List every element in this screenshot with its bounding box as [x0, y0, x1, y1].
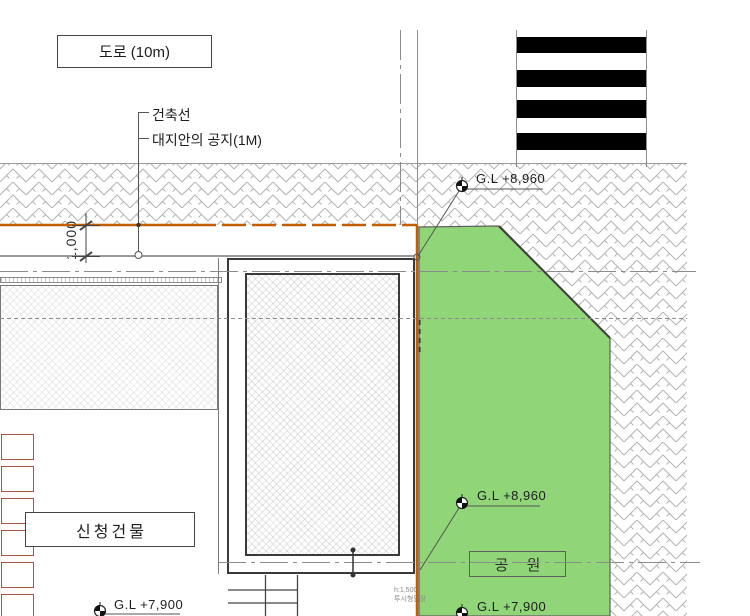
- crosswalk-stripe: [516, 37, 646, 53]
- gl-mid-leader: [420, 508, 459, 570]
- setback-label: 대지안의 공지(1M): [152, 130, 262, 150]
- fence-note: h:1,500 투시형담장: [394, 587, 426, 604]
- gl-level-bottom-right: G.L +7,900: [477, 599, 546, 614]
- building-line-label: 건축선: [152, 105, 191, 125]
- stairs: [228, 575, 298, 616]
- pavement-hatch-right: [420, 163, 687, 616]
- gl-top-leader: [418, 191, 459, 256]
- road-label-box: 도로 (10m): [57, 35, 212, 68]
- building-core-hatch: [245, 273, 400, 556]
- crosswalk-stripe: [516, 133, 646, 150]
- park-diagonal-edge: [499, 226, 610, 338]
- gl-level-mid: G.L +8,960: [477, 488, 546, 503]
- planter: [1, 434, 34, 460]
- park-label-box: 공 원: [469, 551, 566, 577]
- fence-type-label: 투시형담장: [394, 596, 426, 605]
- site-plan-drawing: 도로 (10m) 신청건물 공 원 건축선 대지안의 공지(1M) 1,000 …: [0, 0, 750, 616]
- leader-node-dot: [136, 223, 140, 227]
- park-label: 공 원: [488, 554, 548, 575]
- fence-height-label: h:1,500: [394, 587, 426, 596]
- survey-marker-icon: [457, 494, 468, 509]
- gl-level-bottom-left: G.L +7,900: [114, 597, 183, 612]
- applicant-building-label-box: 신청건물: [25, 512, 195, 547]
- planter: [1, 594, 34, 616]
- crosswalk-stripe: [516, 70, 646, 87]
- survey-marker-icon: [95, 602, 106, 616]
- planter: [1, 466, 34, 492]
- planter: [1, 562, 34, 588]
- left-building-deck: [0, 285, 218, 410]
- leader-node-circle: [135, 252, 142, 259]
- applicant-building-label: 신청건물: [73, 518, 147, 542]
- annotation-leader: [139, 112, 150, 251]
- crosswalk: [516, 30, 646, 170]
- dimension-1000-label: 1,000: [63, 212, 77, 268]
- survey-marker-icon: [457, 177, 468, 192]
- survey-marker-icon: [457, 604, 468, 616]
- road-label: 도로 (10m): [99, 41, 170, 62]
- left-building-wall-strip: [0, 277, 222, 283]
- crosswalk-stripe: [516, 100, 646, 118]
- gl-level-top: G.L +8,960: [476, 171, 545, 186]
